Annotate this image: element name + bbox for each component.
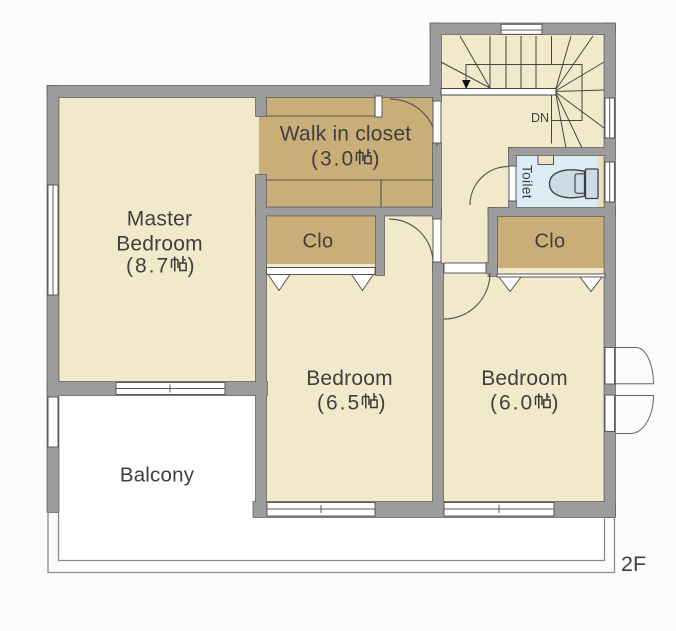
svg-text:2F: 2F (621, 552, 646, 576)
svg-text:): ) (379, 392, 388, 415)
svg-text:Clo: Clo (535, 231, 566, 253)
svg-text:(8.7: (8.7 (126, 255, 170, 278)
svg-text:DN: DN (531, 111, 549, 125)
svg-text:Toilet: Toilet (520, 165, 535, 199)
svg-text:Balcony: Balcony (120, 464, 195, 487)
svg-text:Master: Master (127, 208, 192, 231)
svg-text:(3.0: (3.0 (311, 148, 355, 171)
svg-text:Bedroom: Bedroom (116, 233, 203, 256)
svg-text:): ) (188, 255, 197, 278)
svg-text:): ) (552, 392, 561, 415)
svg-text:(6.0: (6.0 (490, 392, 534, 415)
svg-text:Clo: Clo (303, 231, 334, 253)
svg-text:Walk in closet: Walk in closet (280, 123, 412, 146)
svg-text:(6.5: (6.5 (317, 392, 361, 415)
svg-text:Bedroom: Bedroom (481, 367, 568, 390)
svg-text:): ) (373, 148, 382, 171)
svg-text:Bedroom: Bedroom (306, 367, 393, 390)
